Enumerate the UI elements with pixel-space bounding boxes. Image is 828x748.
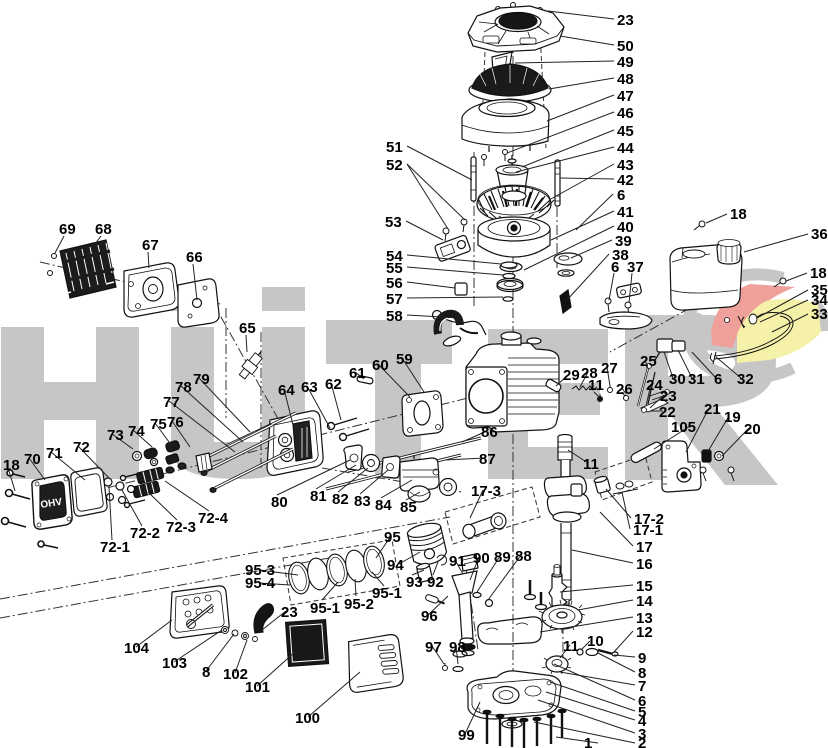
svg-text:10: 10 bbox=[587, 633, 604, 650]
svg-text:93: 93 bbox=[406, 574, 423, 591]
svg-text:96: 96 bbox=[421, 608, 438, 625]
svg-text:95-2: 95-2 bbox=[344, 596, 374, 613]
svg-text:16: 16 bbox=[636, 556, 653, 573]
svg-text:97: 97 bbox=[425, 639, 442, 656]
svg-text:18: 18 bbox=[810, 265, 827, 282]
svg-text:72-2: 72-2 bbox=[130, 525, 160, 542]
svg-text:23: 23 bbox=[281, 604, 298, 621]
svg-text:89: 89 bbox=[494, 549, 511, 566]
svg-text:23: 23 bbox=[617, 12, 634, 29]
svg-text:1: 1 bbox=[584, 735, 592, 748]
svg-text:86: 86 bbox=[481, 424, 498, 441]
svg-text:88: 88 bbox=[515, 548, 532, 565]
svg-text:72: 72 bbox=[73, 439, 90, 456]
svg-text:104: 104 bbox=[124, 640, 150, 657]
svg-text:64: 64 bbox=[278, 382, 295, 399]
svg-text:57: 57 bbox=[386, 291, 403, 308]
svg-text:18: 18 bbox=[3, 457, 20, 474]
svg-text:87: 87 bbox=[479, 451, 496, 468]
svg-text:56: 56 bbox=[386, 275, 403, 292]
svg-text:79: 79 bbox=[193, 371, 210, 388]
svg-text:29: 29 bbox=[563, 367, 580, 384]
svg-text:98: 98 bbox=[449, 639, 466, 656]
svg-text:45: 45 bbox=[617, 123, 634, 140]
svg-text:58: 58 bbox=[386, 308, 403, 325]
svg-text:11: 11 bbox=[583, 456, 599, 473]
svg-text:103: 103 bbox=[162, 655, 187, 672]
svg-text:46: 46 bbox=[617, 105, 634, 122]
svg-text:82: 82 bbox=[332, 491, 349, 508]
svg-text:47: 47 bbox=[617, 88, 634, 105]
svg-text:60: 60 bbox=[372, 357, 389, 374]
svg-text:99: 99 bbox=[458, 727, 475, 744]
svg-text:31: 31 bbox=[688, 371, 705, 388]
svg-text:69: 69 bbox=[59, 221, 76, 238]
svg-text:44: 44 bbox=[617, 140, 634, 157]
svg-text:17-3: 17-3 bbox=[471, 483, 501, 500]
svg-text:33: 33 bbox=[811, 306, 828, 323]
svg-text:32: 32 bbox=[737, 371, 754, 388]
svg-text:95-4: 95-4 bbox=[245, 575, 276, 592]
svg-text:48: 48 bbox=[617, 71, 634, 88]
svg-text:19: 19 bbox=[724, 409, 741, 426]
svg-text:6: 6 bbox=[611, 259, 619, 276]
svg-text:11: 11 bbox=[563, 638, 579, 655]
svg-text:63: 63 bbox=[301, 379, 318, 396]
svg-text:94: 94 bbox=[387, 557, 404, 574]
svg-text:72-4: 72-4 bbox=[198, 510, 229, 527]
svg-text:11: 11 bbox=[588, 377, 604, 394]
svg-text:18: 18 bbox=[730, 206, 747, 223]
svg-text:75: 75 bbox=[150, 416, 167, 433]
svg-text:95-1: 95-1 bbox=[372, 585, 402, 602]
svg-text:25: 25 bbox=[640, 353, 657, 370]
svg-text:74: 74 bbox=[128, 423, 145, 440]
svg-text:37: 37 bbox=[627, 259, 644, 276]
svg-text:80: 80 bbox=[271, 494, 288, 511]
svg-text:70: 70 bbox=[24, 451, 41, 468]
svg-text:36: 36 bbox=[811, 226, 828, 243]
svg-text:50: 50 bbox=[617, 38, 634, 55]
svg-text:17: 17 bbox=[636, 539, 653, 556]
svg-text:2: 2 bbox=[638, 735, 646, 748]
svg-text:101: 101 bbox=[245, 679, 270, 696]
svg-text:23: 23 bbox=[660, 388, 677, 405]
svg-text:49: 49 bbox=[617, 54, 634, 71]
svg-text:81: 81 bbox=[310, 488, 327, 505]
svg-text:51: 51 bbox=[386, 139, 403, 156]
svg-text:77: 77 bbox=[163, 394, 180, 411]
svg-text:61: 61 bbox=[349, 365, 366, 382]
svg-text:52: 52 bbox=[386, 157, 403, 174]
svg-text:65: 65 bbox=[239, 320, 256, 337]
svg-text:85: 85 bbox=[400, 499, 417, 516]
svg-text:6: 6 bbox=[617, 187, 625, 204]
svg-text:90: 90 bbox=[473, 550, 490, 567]
svg-text:62: 62 bbox=[325, 376, 342, 393]
svg-text:72-3: 72-3 bbox=[166, 519, 196, 536]
svg-text:14: 14 bbox=[636, 593, 653, 610]
svg-text:26: 26 bbox=[616, 381, 633, 398]
svg-text:6: 6 bbox=[714, 371, 722, 388]
svg-text:59: 59 bbox=[396, 351, 413, 368]
svg-text:67: 67 bbox=[142, 237, 159, 254]
svg-text:12: 12 bbox=[636, 624, 653, 641]
svg-text:73: 73 bbox=[107, 427, 124, 444]
svg-text:21: 21 bbox=[704, 401, 721, 418]
svg-text:91: 91 bbox=[449, 553, 466, 570]
svg-text:66: 66 bbox=[186, 249, 203, 266]
svg-text:27: 27 bbox=[601, 360, 618, 377]
svg-text:76: 76 bbox=[167, 414, 184, 431]
svg-text:17-1: 17-1 bbox=[633, 522, 663, 539]
svg-text:68: 68 bbox=[95, 221, 112, 238]
svg-text:72-1: 72-1 bbox=[100, 539, 130, 556]
svg-text:30: 30 bbox=[669, 371, 686, 388]
svg-text:8: 8 bbox=[202, 664, 210, 681]
svg-text:71: 71 bbox=[46, 445, 63, 462]
svg-text:100: 100 bbox=[295, 710, 320, 727]
svg-text:95-1: 95-1 bbox=[310, 600, 340, 617]
svg-text:95: 95 bbox=[384, 529, 401, 546]
svg-text:105: 105 bbox=[671, 419, 696, 436]
svg-text:20: 20 bbox=[744, 421, 761, 438]
svg-text:83: 83 bbox=[354, 493, 371, 510]
svg-text:92: 92 bbox=[427, 574, 444, 591]
svg-text:53: 53 bbox=[385, 214, 402, 231]
svg-text:84: 84 bbox=[375, 497, 392, 514]
